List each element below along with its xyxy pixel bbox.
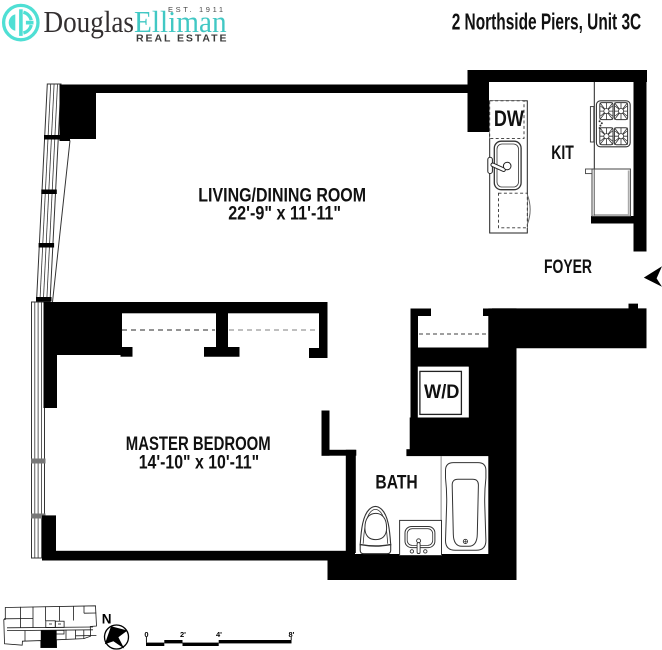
- svg-text:0: 0: [144, 630, 148, 639]
- svg-text:REAL ESTATE: REAL ESTATE: [136, 33, 227, 45]
- svg-text:BATH: BATH: [375, 471, 417, 493]
- svg-text:W/D: W/D: [424, 381, 459, 403]
- svg-text:FOYER: FOYER: [544, 256, 592, 278]
- svg-text:DW: DW: [494, 106, 524, 131]
- svg-text:2 Northside Piers, Unit 3C: 2 Northside Piers, Unit 3C: [452, 9, 642, 35]
- svg-text:2': 2': [180, 630, 186, 639]
- svg-text:N: N: [102, 612, 112, 627]
- svg-text:14'-10" x 10'-11": 14'-10" x 10'-11": [139, 452, 260, 474]
- svg-text:4': 4': [216, 630, 222, 639]
- svg-text:8': 8': [289, 630, 295, 639]
- svg-text:22'-9" x 11'-11": 22'-9" x 11'-11": [228, 203, 341, 225]
- svg-text:EST. 1911: EST. 1911: [168, 5, 223, 14]
- svg-text:Douglas: Douglas: [44, 4, 135, 39]
- svg-text:KIT: KIT: [551, 142, 574, 164]
